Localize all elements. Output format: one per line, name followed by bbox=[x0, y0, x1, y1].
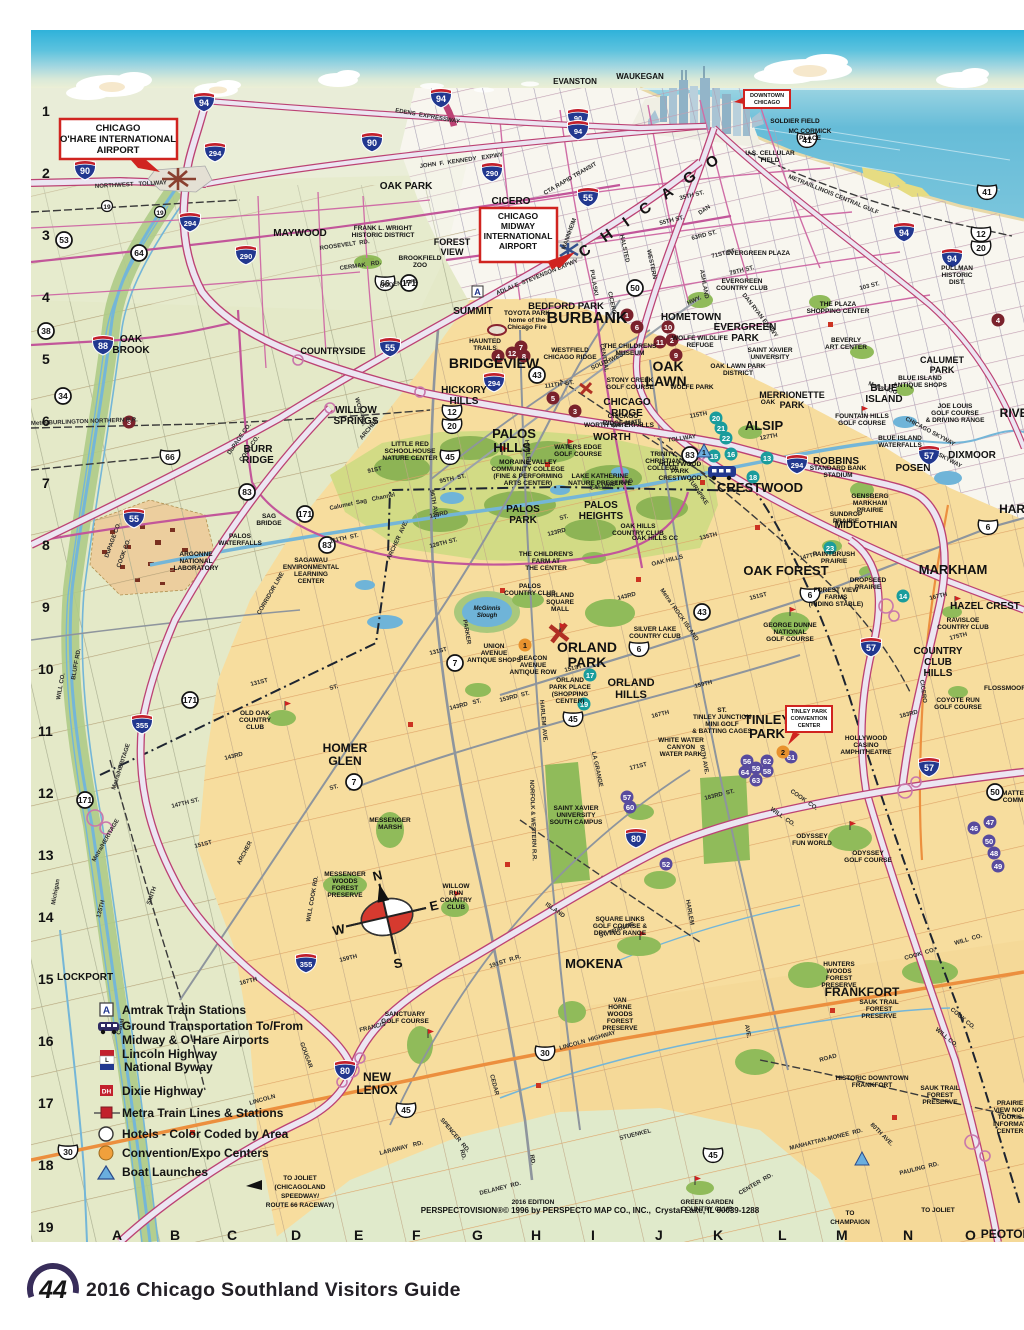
svg-text:CHICAGO RIDGE: CHICAGO RIDGE bbox=[543, 354, 597, 361]
svg-text:SAGAWAU: SAGAWAU bbox=[294, 557, 328, 564]
svg-text:LEARNING: LEARNING bbox=[294, 571, 328, 578]
svg-text:94: 94 bbox=[947, 254, 957, 264]
svg-text:PARK: PARK bbox=[671, 468, 689, 475]
svg-text:TOURIS: TOURIS bbox=[998, 1114, 1023, 1121]
svg-text:FOREST: FOREST bbox=[607, 1018, 633, 1025]
svg-text:17: 17 bbox=[586, 671, 594, 680]
svg-text:GOLF COURSE: GOLF COURSE bbox=[838, 420, 886, 427]
svg-text:PRAIRIE: PRAIRIE bbox=[857, 507, 884, 514]
svg-text:CHICAGO: CHICAGO bbox=[603, 397, 650, 408]
svg-text:ANTIQUE SHOPS: ANTIQUE SHOPS bbox=[893, 382, 947, 389]
svg-text:SOUTH CAMPUS: SOUTH CAMPUS bbox=[550, 819, 603, 826]
svg-text:38: 38 bbox=[41, 326, 51, 336]
svg-text:FOREST VIEW: FOREST VIEW bbox=[814, 587, 860, 594]
svg-text:SHOPPING CENTER: SHOPPING CENTER bbox=[807, 308, 870, 315]
svg-text:94: 94 bbox=[574, 127, 583, 136]
svg-text:VIEW NOR: VIEW NOR bbox=[994, 1107, 1024, 1114]
svg-text:10: 10 bbox=[664, 323, 672, 332]
svg-text:46: 46 bbox=[970, 824, 978, 833]
svg-text:PARK: PARK bbox=[731, 333, 759, 344]
svg-text:6: 6 bbox=[42, 413, 50, 429]
svg-text:I: I bbox=[591, 1227, 595, 1243]
svg-text:Boat Launches: Boat Launches bbox=[122, 1165, 208, 1179]
svg-text:WOODS: WOODS bbox=[607, 1011, 633, 1018]
svg-text:OAK: OAK bbox=[120, 334, 143, 345]
svg-text:57: 57 bbox=[924, 763, 934, 773]
svg-text:WATERS EDGE: WATERS EDGE bbox=[554, 444, 602, 451]
svg-text:TO JOLIET: TO JOLIET bbox=[921, 1207, 954, 1214]
svg-text:PRESERVE: PRESERVE bbox=[327, 892, 363, 899]
svg-text:TRAILS: TRAILS bbox=[473, 345, 497, 352]
svg-text:PAINTBRUSH: PAINTBRUSH bbox=[813, 551, 855, 558]
svg-text:BRIDGE: BRIDGE bbox=[256, 520, 282, 527]
svg-text:ART CENTER: ART CENTER bbox=[825, 344, 867, 351]
svg-text:GOLF COURSE: GOLF COURSE bbox=[766, 636, 814, 643]
svg-text:MARKHAM: MARKHAM bbox=[853, 500, 887, 507]
svg-text:47: 47 bbox=[986, 818, 994, 827]
svg-text:ODYSSEY: ODYSSEY bbox=[852, 850, 884, 857]
svg-text:THE CENTER: THE CENTER bbox=[525, 565, 567, 572]
svg-text:O'HARE INTERNATIONAL: O'HARE INTERNATIONAL bbox=[60, 134, 176, 145]
svg-text:FOREST: FOREST bbox=[434, 237, 471, 247]
svg-text:CANYON: CANYON bbox=[667, 744, 695, 751]
svg-text:9: 9 bbox=[42, 599, 50, 615]
svg-text:HAZEL CREST: HAZEL CREST bbox=[950, 601, 1020, 612]
svg-text:BEVERLY: BEVERLY bbox=[831, 337, 862, 344]
svg-text:6: 6 bbox=[635, 323, 639, 332]
svg-text:OAK HILLS CC: OAK HILLS CC bbox=[632, 535, 679, 542]
svg-text:CLUB: CLUB bbox=[447, 904, 465, 911]
svg-text:OAK: OAK bbox=[761, 399, 776, 406]
svg-text:1: 1 bbox=[42, 103, 50, 119]
svg-text:WATER PARK: WATER PARK bbox=[660, 751, 703, 758]
svg-text:WORTH: WORTH bbox=[593, 432, 631, 443]
svg-text:OLD OAK: OLD OAK bbox=[240, 710, 270, 717]
svg-text:45: 45 bbox=[568, 714, 578, 724]
svg-text:MC CORMICK: MC CORMICK bbox=[789, 128, 832, 135]
svg-text:PRAIRIE: PRAIRIE bbox=[821, 558, 848, 565]
svg-text:ORLAND: ORLAND bbox=[556, 677, 584, 684]
svg-text:BLUE ISLAND: BLUE ISLAND bbox=[878, 435, 922, 442]
svg-text:19: 19 bbox=[103, 204, 111, 211]
svg-text:17: 17 bbox=[38, 1095, 54, 1111]
svg-text:55: 55 bbox=[583, 193, 593, 203]
svg-text:AMPHITHEATRE: AMPHITHEATRE bbox=[840, 749, 892, 756]
svg-text:MARSH: MARSH bbox=[378, 824, 402, 831]
svg-text:WATERFALLS: WATERFALLS bbox=[878, 442, 922, 449]
svg-text:LABORATORY: LABORATORY bbox=[173, 565, 219, 572]
svg-text:ORLAND: ORLAND bbox=[607, 677, 654, 689]
svg-text:PALOS: PALOS bbox=[229, 533, 252, 540]
svg-text:PEOTON: PEOTON bbox=[981, 1227, 1024, 1241]
svg-text:63: 63 bbox=[752, 776, 760, 785]
svg-text:(FINE & PERFORMING: (FINE & PERFORMING bbox=[493, 473, 562, 480]
svg-text:WATERFALLS: WATERFALLS bbox=[218, 540, 262, 547]
svg-text:20: 20 bbox=[976, 243, 986, 253]
svg-text:PRAIRIE: PRAIRIE bbox=[833, 518, 860, 525]
svg-text:PARK: PARK bbox=[749, 726, 785, 741]
svg-text:RAVISLOE: RAVISLOE bbox=[947, 617, 980, 624]
svg-text:A: A bbox=[103, 1006, 110, 1017]
svg-text:COUNTRY: COUNTRY bbox=[913, 646, 962, 657]
svg-text:PRAIRIE: PRAIRIE bbox=[997, 1100, 1024, 1107]
svg-text:C: C bbox=[227, 1227, 237, 1243]
svg-text:ORLAND: ORLAND bbox=[557, 639, 617, 655]
svg-text:60: 60 bbox=[626, 803, 634, 812]
svg-text:58: 58 bbox=[763, 767, 771, 776]
svg-text:OAK LAWN PARK: OAK LAWN PARK bbox=[710, 363, 765, 370]
svg-text:MESSENGER: MESSENGER bbox=[369, 817, 411, 824]
svg-text:HILLS: HILLS bbox=[924, 668, 953, 679]
svg-text:CENTER: CENTER bbox=[298, 578, 325, 585]
svg-text:83: 83 bbox=[685, 450, 695, 460]
svg-text:TO: TO bbox=[846, 1210, 855, 1217]
svg-text:RIVER: RIVER bbox=[1000, 406, 1024, 420]
svg-text:SAG: SAG bbox=[262, 513, 276, 520]
svg-text:41: 41 bbox=[982, 187, 992, 197]
svg-text:UNIVERSITY: UNIVERSITY bbox=[556, 812, 596, 819]
svg-text:GOLF COURSE: GOLF COURSE bbox=[554, 451, 602, 458]
svg-text:55: 55 bbox=[129, 514, 139, 524]
svg-text:290: 290 bbox=[240, 252, 253, 261]
svg-text:ZOO: ZOO bbox=[413, 262, 427, 269]
svg-text:TOYOTA PARK: TOYOTA PARK bbox=[504, 310, 550, 317]
svg-text:6: 6 bbox=[637, 644, 642, 654]
svg-text:PALOS: PALOS bbox=[519, 583, 542, 590]
svg-text:DISTRICT: DISTRICT bbox=[723, 370, 753, 377]
svg-text:OAK HILLS: OAK HILLS bbox=[620, 523, 656, 530]
svg-text:BEACON: BEACON bbox=[519, 655, 547, 662]
svg-text:171: 171 bbox=[183, 695, 197, 705]
svg-text:GEORGE DUNNE: GEORGE DUNNE bbox=[763, 622, 817, 629]
svg-text:HICKORY: HICKORY bbox=[441, 385, 487, 396]
svg-text:HOMETOWN: HOMETOWN bbox=[661, 312, 721, 323]
svg-text:Convention/Expo Centers: Convention/Expo Centers bbox=[122, 1146, 269, 1160]
svg-text:STADIUM: STADIUM bbox=[823, 472, 852, 479]
svg-text:VAN: VAN bbox=[613, 997, 627, 1004]
svg-text:CHICAGO: CHICAGO bbox=[608, 413, 639, 420]
svg-text:11: 11 bbox=[38, 723, 53, 739]
svg-text:National Byway: National Byway bbox=[124, 1060, 213, 1074]
svg-text:94: 94 bbox=[199, 98, 209, 108]
svg-text:WAUKEGAN: WAUKEGAN bbox=[616, 72, 664, 81]
svg-text:(RIDING STABLE): (RIDING STABLE) bbox=[809, 601, 863, 608]
svg-text:K: K bbox=[713, 1227, 723, 1243]
svg-text:44: 44 bbox=[38, 1276, 67, 1304]
svg-text:THE CHILDRENS: THE CHILDRENS bbox=[604, 343, 657, 350]
svg-text:WESTFIELD: WESTFIELD bbox=[551, 347, 589, 354]
svg-text:ARGONNE: ARGONNE bbox=[179, 551, 213, 558]
svg-text:DIXMOOR: DIXMOOR bbox=[948, 450, 997, 461]
svg-text:48: 48 bbox=[990, 849, 998, 858]
svg-text:ENVIRONMENTAL: ENVIRONMENTAL bbox=[283, 564, 339, 571]
svg-text:50: 50 bbox=[985, 837, 993, 846]
svg-text:14: 14 bbox=[38, 909, 54, 925]
svg-text:J: J bbox=[655, 1227, 663, 1243]
svg-text:19: 19 bbox=[38, 1219, 54, 1235]
svg-text:POSEN: POSEN bbox=[895, 463, 930, 474]
svg-text:55: 55 bbox=[385, 343, 395, 353]
svg-text:PARK: PARK bbox=[780, 400, 805, 410]
svg-text:FOREST: FOREST bbox=[927, 1092, 953, 1099]
svg-text:18: 18 bbox=[38, 1157, 54, 1173]
svg-text:Metra Train Lines & Stations: Metra Train Lines & Stations bbox=[122, 1106, 284, 1120]
svg-text:A: A bbox=[474, 287, 481, 297]
svg-text:BROOKFIELD: BROOKFIELD bbox=[399, 255, 442, 262]
svg-text:COMM: COMM bbox=[1003, 797, 1024, 804]
svg-text:L: L bbox=[105, 1058, 109, 1064]
svg-text:HILLS: HILLS bbox=[615, 689, 647, 701]
svg-text:HILLS: HILLS bbox=[450, 396, 479, 407]
svg-text:ISLAND: ISLAND bbox=[865, 394, 902, 405]
svg-text:SQUARE LINKS: SQUARE LINKS bbox=[595, 916, 645, 923]
svg-text:PARK PLACE: PARK PLACE bbox=[549, 684, 591, 691]
svg-text:45: 45 bbox=[708, 1150, 718, 1160]
svg-text:294: 294 bbox=[791, 461, 804, 470]
svg-text:BLUE ISLAND: BLUE ISLAND bbox=[898, 375, 942, 382]
svg-text:GLEN: GLEN bbox=[328, 754, 361, 768]
svg-text:ALSIP: ALSIP bbox=[745, 418, 784, 433]
svg-text:13: 13 bbox=[38, 847, 54, 863]
svg-text:8: 8 bbox=[42, 537, 50, 553]
svg-text:45: 45 bbox=[445, 452, 455, 462]
svg-text:(SHOPPING: (SHOPPING bbox=[552, 691, 588, 698]
svg-text:DIST.: DIST. bbox=[949, 279, 965, 286]
svg-text:HOLLYWOOD: HOLLYWOOD bbox=[845, 735, 888, 742]
svg-text:UNIVERSITY: UNIVERSITY bbox=[750, 354, 790, 361]
svg-text:AIRPORT: AIRPORT bbox=[97, 145, 140, 156]
svg-text:CLUB: CLUB bbox=[246, 724, 264, 731]
svg-text:BROOK: BROOK bbox=[112, 345, 150, 356]
svg-text:5: 5 bbox=[551, 394, 555, 403]
svg-text:ODYSSEY: ODYSSEY bbox=[796, 833, 828, 840]
svg-text:2016 EDITION: 2016 EDITION bbox=[512, 1199, 555, 1206]
svg-text:HORNE: HORNE bbox=[608, 1004, 632, 1011]
svg-text:CENTER): CENTER) bbox=[556, 698, 585, 705]
svg-text:12: 12 bbox=[38, 785, 54, 801]
svg-text:CHICAGO: CHICAGO bbox=[754, 100, 781, 106]
svg-text:OAK: OAK bbox=[652, 358, 683, 374]
svg-text:SPEEDWAY/: SPEEDWAY/ bbox=[281, 1193, 319, 1200]
svg-text:D: D bbox=[291, 1227, 301, 1243]
svg-text:STANDARD BANK: STANDARD BANK bbox=[810, 465, 867, 472]
svg-text:SAUK TRAIL: SAUK TRAIL bbox=[859, 999, 898, 1006]
svg-text:FARMS: FARMS bbox=[825, 594, 848, 601]
svg-text:CALUMET: CALUMET bbox=[920, 355, 964, 365]
svg-text:OAK FOREST: OAK FOREST bbox=[743, 563, 828, 578]
svg-text:HISTORIC DISTRICT: HISTORIC DISTRICT bbox=[352, 232, 415, 239]
svg-text:52: 52 bbox=[662, 860, 670, 869]
svg-text:6: 6 bbox=[808, 590, 813, 600]
svg-text:& DRIVING RANGE: & DRIVING RANGE bbox=[926, 417, 986, 424]
svg-text:CICERO: CICERO bbox=[492, 196, 531, 207]
svg-text:WOLFE WILDLIFE: WOLFE WILDLIFE bbox=[672, 335, 729, 342]
svg-text:McGinnis: McGinnis bbox=[473, 606, 501, 612]
svg-text:14: 14 bbox=[899, 592, 908, 601]
svg-text:56: 56 bbox=[743, 757, 751, 766]
svg-text:PRAIRIE: PRAIRIE bbox=[855, 584, 882, 591]
svg-text:COUNTRY CLUB: COUNTRY CLUB bbox=[629, 633, 681, 640]
svg-text:SOLDIER FIELD: SOLDIER FIELD bbox=[770, 118, 820, 125]
svg-text:88: 88 bbox=[98, 341, 108, 351]
svg-text:EVANSTON: EVANSTON bbox=[553, 77, 597, 86]
svg-text:NATURE CENTER: NATURE CENTER bbox=[382, 455, 437, 462]
svg-text:171: 171 bbox=[78, 795, 92, 805]
svg-text:LITTLE RED: LITTLE RED bbox=[391, 441, 429, 448]
svg-text:CHICAGO: CHICAGO bbox=[96, 123, 141, 134]
svg-text:34: 34 bbox=[58, 391, 68, 401]
svg-text:AVENUE: AVENUE bbox=[520, 662, 547, 669]
svg-text:WILLOW: WILLOW bbox=[442, 883, 470, 890]
svg-text:90: 90 bbox=[80, 166, 90, 176]
svg-text:PRESERVE: PRESERVE bbox=[821, 982, 857, 989]
svg-text:PULLMAN: PULLMAN bbox=[941, 265, 973, 272]
svg-text:PARK: PARK bbox=[930, 365, 955, 375]
svg-text:64: 64 bbox=[134, 248, 144, 258]
svg-text:OAK PARK: OAK PARK bbox=[380, 181, 433, 192]
svg-text:PALOS: PALOS bbox=[506, 504, 540, 515]
svg-text:MAYWOOD: MAYWOOD bbox=[273, 228, 327, 239]
svg-text:Hotels - Color Coded by Area: Hotels - Color Coded by Area bbox=[122, 1127, 289, 1141]
svg-text:CRESTWOOD: CRESTWOOD bbox=[659, 475, 702, 482]
svg-text:FUN WORLD: FUN WORLD bbox=[792, 840, 832, 847]
svg-text:7: 7 bbox=[519, 343, 523, 352]
svg-text:355: 355 bbox=[300, 960, 313, 969]
svg-text:10: 10 bbox=[38, 661, 54, 677]
svg-text:O: O bbox=[965, 1227, 976, 1243]
svg-text:H: H bbox=[531, 1227, 541, 1243]
svg-text:83: 83 bbox=[242, 487, 252, 497]
svg-text:WOODS: WOODS bbox=[332, 878, 358, 885]
svg-text:64: 64 bbox=[741, 768, 750, 777]
svg-text:TO JOLIET: TO JOLIET bbox=[283, 1175, 316, 1182]
svg-text:LOCKPORT: LOCKPORT bbox=[57, 972, 113, 983]
svg-text:VIEW: VIEW bbox=[440, 247, 464, 257]
svg-text:HAUNTED: HAUNTED bbox=[469, 338, 501, 345]
svg-text:GOLF COURSE: GOLF COURSE bbox=[606, 384, 654, 391]
svg-text:CONVENTION: CONVENTION bbox=[791, 716, 828, 722]
svg-text:80: 80 bbox=[631, 834, 641, 844]
svg-text:43: 43 bbox=[532, 370, 542, 380]
svg-text:COUNTRY CLUB: COUNTRY CLUB bbox=[716, 285, 768, 292]
svg-text:49: 49 bbox=[994, 862, 1002, 871]
svg-text:94: 94 bbox=[899, 228, 909, 238]
svg-text:GOLF COURSE: GOLF COURSE bbox=[934, 704, 982, 711]
svg-text:SUMMIT: SUMMIT bbox=[453, 306, 492, 317]
svg-text:15: 15 bbox=[38, 971, 54, 987]
svg-text:MIDWAY: MIDWAY bbox=[501, 221, 535, 231]
svg-text:50: 50 bbox=[990, 787, 1000, 797]
svg-text:N: N bbox=[903, 1227, 913, 1243]
svg-text:ANTIQUE ROW: ANTIQUE ROW bbox=[510, 669, 558, 676]
svg-text:TRINITY: TRINITY bbox=[650, 451, 676, 458]
svg-text:DROPSEED: DROPSEED bbox=[850, 577, 887, 584]
svg-text:Chicago Fire: Chicago Fire bbox=[507, 324, 547, 331]
svg-text:7: 7 bbox=[453, 658, 458, 668]
svg-text:4: 4 bbox=[42, 289, 50, 305]
svg-text:HEIGHTS: HEIGHTS bbox=[579, 511, 624, 522]
svg-text:66: 66 bbox=[165, 452, 175, 462]
svg-text:2: 2 bbox=[781, 748, 785, 757]
svg-text:AIRPORT: AIRPORT bbox=[499, 241, 538, 251]
svg-text:NEW: NEW bbox=[363, 1070, 392, 1084]
svg-text:290: 290 bbox=[486, 169, 499, 178]
svg-text:G: G bbox=[472, 1227, 483, 1243]
svg-text:COUNTRY: COUNTRY bbox=[440, 897, 473, 904]
svg-text:DOWNTOWN: DOWNTOWN bbox=[750, 93, 784, 99]
svg-text:43: 43 bbox=[697, 607, 707, 617]
svg-text:57: 57 bbox=[866, 643, 876, 653]
svg-text:MARKHAM: MARKHAM bbox=[919, 562, 988, 577]
svg-text:20: 20 bbox=[447, 421, 457, 431]
svg-text:TINLEY JUNCTION: TINLEY JUNCTION bbox=[693, 714, 751, 721]
svg-text:F: F bbox=[412, 1227, 421, 1243]
svg-text:COUNTRY CLUB: COUNTRY CLUB bbox=[504, 590, 556, 597]
svg-text:EVERGREEN: EVERGREEN bbox=[722, 278, 763, 285]
svg-text:FRANKFORT: FRANKFORT bbox=[852, 1082, 892, 1089]
svg-text:HOMER: HOMER bbox=[323, 741, 368, 755]
svg-text:Dixie Highway: Dixie Highway bbox=[122, 1084, 204, 1098]
svg-text:Lincoln Highway: Lincoln Highway bbox=[122, 1047, 218, 1061]
svg-text:19: 19 bbox=[156, 210, 164, 217]
svg-text:FOREST: FOREST bbox=[332, 885, 358, 892]
svg-text:home of the: home of the bbox=[509, 317, 546, 324]
svg-text:B: B bbox=[170, 1227, 180, 1243]
svg-text:HOLLYWOOD: HOLLYWOOD bbox=[659, 461, 702, 468]
svg-text:CENTER: CENTER bbox=[798, 723, 821, 729]
svg-text:Midway & O'Hare Airports: Midway & O'Hare Airports bbox=[122, 1033, 269, 1047]
svg-text:GOLF COURSE: GOLF COURSE bbox=[931, 410, 979, 417]
svg-text:59: 59 bbox=[752, 764, 760, 773]
svg-text:355: 355 bbox=[136, 721, 149, 730]
svg-text:PRESERVE: PRESERVE bbox=[922, 1099, 958, 1106]
svg-text:Slough: Slough bbox=[477, 613, 498, 619]
svg-text:45: 45 bbox=[401, 1105, 411, 1115]
svg-text:80: 80 bbox=[340, 1066, 350, 1076]
svg-text:PLACE: PLACE bbox=[799, 135, 822, 142]
svg-text:LAKE KATHERINE: LAKE KATHERINE bbox=[572, 473, 630, 480]
svg-text:THE CHILDREN'S: THE CHILDREN'S bbox=[519, 551, 574, 558]
svg-text:SILVER LAKE: SILVER LAKE bbox=[634, 626, 677, 633]
svg-text:MESSENGER: MESSENGER bbox=[324, 871, 366, 878]
svg-text:PALOS: PALOS bbox=[584, 500, 618, 511]
svg-text:PRESERVE: PRESERVE bbox=[861, 1013, 897, 1020]
svg-text:2: 2 bbox=[42, 165, 50, 181]
svg-text:5: 5 bbox=[42, 351, 50, 367]
svg-text:Amtrak Train Stations: Amtrak Train Stations bbox=[122, 1003, 246, 1017]
svg-text:REFUGE: REFUGE bbox=[686, 342, 714, 349]
svg-text:HISTORIC DOWNTOWN: HISTORIC DOWNTOWN bbox=[835, 1075, 908, 1082]
svg-text:57: 57 bbox=[924, 451, 934, 461]
svg-text:INTERNATIONAL: INTERNATIONAL bbox=[484, 231, 553, 241]
svg-text:SAINT XAVIER: SAINT XAVIER bbox=[747, 347, 792, 354]
svg-text:FLOSSMOOR: FLOSSMOOR bbox=[984, 685, 1024, 692]
svg-text:E: E bbox=[354, 1227, 363, 1243]
svg-text:HISTORIC: HISTORIC bbox=[942, 272, 973, 279]
svg-text:CHAMPAIGN: CHAMPAIGN bbox=[830, 1219, 870, 1226]
svg-text:FARM AT: FARM AT bbox=[532, 558, 560, 565]
svg-text:UNION: UNION bbox=[484, 643, 505, 650]
svg-text:22: 22 bbox=[722, 434, 730, 443]
svg-text:CENTER: CENTER bbox=[997, 1128, 1024, 1135]
svg-text:Ground Transportation To/From: Ground Transportation To/From bbox=[122, 1019, 303, 1033]
svg-text:171: 171 bbox=[298, 509, 312, 519]
svg-text:HUNTERS: HUNTERS bbox=[823, 961, 855, 968]
svg-text:62: 62 bbox=[763, 757, 771, 766]
svg-text:1: 1 bbox=[702, 450, 706, 457]
svg-text:SQUARE: SQUARE bbox=[546, 599, 574, 606]
svg-text:12: 12 bbox=[447, 407, 457, 417]
